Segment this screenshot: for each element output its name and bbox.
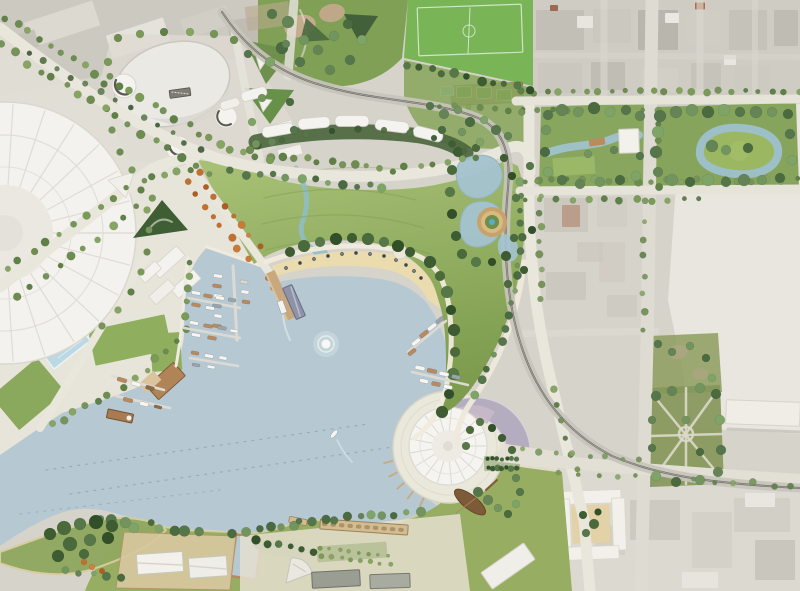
creek-park-east-trees [686, 104, 698, 116]
pacific-trees-south [109, 222, 118, 231]
andy-park-trees [267, 9, 277, 19]
quebec-street-trees [535, 250, 543, 258]
quay-trees [181, 312, 189, 320]
cross-street-trees [665, 198, 671, 204]
white-roof [682, 572, 718, 588]
arena-plaza-trees [136, 30, 144, 38]
terminal-trees [588, 454, 593, 459]
main-street-trees [655, 183, 663, 191]
park-lawn [552, 156, 595, 177]
arena-plaza-trees [114, 34, 122, 42]
expo-trees-north [82, 62, 89, 69]
expo-trees-south [39, 70, 45, 76]
bosque-row [500, 458, 504, 462]
andy-park-trees [357, 35, 367, 45]
expo-trees-north [187, 121, 193, 127]
expo-trees-north-east [339, 161, 346, 168]
creek-park-west-trees [556, 104, 568, 116]
quay-trees [186, 273, 193, 280]
junction-trees [148, 173, 155, 180]
cross-street-trees [545, 89, 551, 95]
expo-trees-south [112, 112, 119, 119]
lawn-north-trees [354, 184, 360, 190]
expo-trees-south [23, 61, 31, 69]
expo-median-trees [171, 130, 176, 135]
arena-plaza-trees [230, 36, 238, 44]
creek-park-east-trees [666, 174, 678, 186]
stadium-ring-trees [138, 187, 145, 194]
andy-park-trees [313, 45, 323, 55]
orchard-row [329, 554, 334, 559]
cross-street-trees [715, 87, 722, 94]
island-trees [89, 515, 103, 529]
roofband-trees [431, 135, 437, 141]
pond-park-trees [447, 209, 457, 219]
thornton-trees [648, 416, 656, 424]
quay-trees [151, 354, 159, 362]
orchard-row [340, 556, 344, 560]
cross-street-trees [586, 196, 593, 203]
terminal-trees [633, 473, 637, 477]
beach-umbrellas [326, 254, 329, 257]
berm-trees [310, 549, 317, 556]
courts-edge-trees [437, 105, 441, 109]
field-edge-trees [463, 73, 469, 79]
quay-trees [163, 349, 169, 355]
slope-trees [438, 126, 446, 134]
expo-trees-north-east [226, 146, 234, 154]
lawn-north-trees [298, 174, 307, 183]
expo-trees-north [153, 102, 159, 108]
east-shore-grove [446, 305, 456, 315]
city-block [729, 10, 767, 50]
thornton-trees [713, 467, 723, 477]
orchard-row [367, 552, 371, 556]
lawn-north-trees [377, 184, 386, 193]
andy-park-trees [282, 16, 294, 28]
curve-trees-east [518, 233, 526, 241]
quay-trees [174, 339, 179, 344]
dirt-patch [692, 368, 708, 380]
umbrella-tops [341, 253, 342, 254]
creek-park-east-trees [670, 106, 682, 118]
festival-autumn-trees [185, 178, 191, 184]
pond-park-trees [526, 162, 534, 170]
dome-shore-trees [504, 510, 512, 518]
park-pavilion [619, 129, 640, 154]
south-shore-trees [155, 524, 163, 532]
expo-median-trees [141, 114, 147, 120]
berm-trees [288, 544, 294, 550]
terminal-trees [636, 457, 642, 463]
curve-trees-east [483, 366, 490, 373]
street-ne [516, 55, 800, 57]
green-block-trees [654, 340, 662, 348]
curve-trees-east [491, 352, 497, 358]
arena-plaza-trees [266, 156, 274, 164]
creek-park-east-trees [721, 177, 731, 187]
terminal-trees [615, 474, 620, 479]
pond-park-trees [447, 165, 457, 175]
expo-trees-north [36, 36, 42, 42]
south-shore-trees [307, 517, 316, 526]
master-plan-map [0, 0, 800, 591]
festival-autumn-trees [231, 214, 236, 219]
stadium-ring-trees [117, 149, 124, 156]
expo-trees-north-east [252, 154, 259, 161]
curve-trees [445, 159, 451, 165]
thornton-trees [667, 386, 677, 396]
pond-park-trees [501, 251, 511, 261]
quebec-street-trees [550, 386, 557, 393]
east-shore-grove [488, 424, 496, 432]
expo-trees-south [154, 137, 160, 143]
pacific-trees-north [98, 204, 104, 210]
stadium-ring-trees [129, 167, 136, 174]
south-shore-trees [296, 518, 302, 524]
curve-trees-east [505, 312, 513, 320]
expo-median-trees [55, 66, 60, 71]
umbrella-tops [413, 270, 414, 271]
umbrella-tops [395, 259, 396, 260]
andy-park-trees [295, 57, 305, 67]
island-autumn-trees [81, 559, 87, 565]
pond-park-trees [451, 231, 461, 241]
creek-park-east-trees [721, 145, 731, 155]
arena-plaza-trees [101, 81, 108, 88]
andy-park-trees [345, 55, 355, 65]
expo-median-trees [40, 57, 47, 64]
courts-edge-trees [477, 104, 484, 111]
roofband-trees [329, 128, 335, 134]
expo-trees-south [74, 91, 82, 99]
cross-street-trees [523, 198, 527, 202]
island-trees [79, 549, 89, 559]
thornton-trees [651, 471, 661, 481]
cross-street-trees [637, 87, 644, 94]
expo-trees-north [135, 93, 144, 102]
curve-trees-east [517, 208, 522, 213]
east-shore-grove [450, 347, 460, 357]
curve-trees-east [498, 337, 507, 346]
expo-median-trees [181, 140, 187, 146]
south-shore-trees [170, 526, 180, 536]
field-edge-trees [490, 80, 496, 86]
thornton-trees [695, 475, 705, 485]
expo-trees-south [136, 130, 145, 139]
quay-trees [187, 260, 192, 265]
quay-trees [95, 398, 102, 405]
curve-trees [400, 163, 407, 170]
cross-street-trees [606, 178, 612, 184]
stadium-ring-trees [99, 323, 106, 330]
bosque-row [499, 466, 504, 471]
south-shore-trees [322, 515, 331, 524]
slope-trees [504, 132, 512, 140]
expo-median-trees [98, 88, 105, 95]
creek-park-east-trees [775, 173, 785, 183]
cross-street-trees [548, 176, 554, 182]
creek-park-east-trees [685, 177, 695, 187]
south-shore-trees [266, 522, 276, 532]
field-edge-trees [438, 70, 445, 77]
andy-park-trees [329, 31, 339, 41]
creek-park-east-trees [757, 175, 767, 185]
pond-park-trees [471, 257, 481, 267]
green-block-trees [668, 348, 676, 356]
expo-median-trees [113, 98, 118, 103]
beach-grove [392, 240, 404, 252]
main-street-trees [655, 137, 661, 143]
stadium-ring-trees [128, 289, 135, 296]
beach-grove [379, 237, 389, 247]
expo-median-trees [155, 123, 160, 128]
pond-park-trees [500, 154, 508, 162]
expo-trees-north-east [240, 149, 246, 155]
pond-park-trees [510, 234, 518, 242]
creek-park-west-trees [573, 107, 583, 117]
expo-trees-north [216, 140, 225, 149]
green-block-trees [708, 374, 716, 382]
expo-trees-north [160, 107, 167, 114]
fountain [322, 340, 331, 349]
city-block [546, 272, 586, 300]
cross-street-trees [553, 196, 560, 203]
curve-trees [473, 155, 479, 161]
red-roof-block [562, 205, 580, 227]
cross-street-trees [537, 197, 542, 202]
slope-trees [426, 102, 434, 110]
creek-park-west-trees [615, 175, 625, 185]
creek-park-west-trees [557, 175, 567, 185]
festival-autumn-trees [211, 214, 216, 219]
pacific-trees-south [13, 293, 21, 301]
island-south-trees [117, 574, 125, 582]
creek-park-west-trees [635, 111, 645, 121]
expo-trees-north-east [290, 155, 297, 162]
pacific-trees-north [124, 185, 129, 190]
bosque-row [509, 456, 514, 461]
expo-trees-north-east [329, 158, 336, 165]
main-street-trees [642, 219, 647, 224]
courtyard-palms [579, 511, 587, 519]
field-edge-trees [477, 77, 487, 87]
creek-park-west-trees [584, 150, 592, 158]
bosque-row [494, 456, 499, 461]
south-shore-trees [378, 512, 386, 520]
expo-trees-north [90, 70, 99, 79]
island-trees [84, 534, 96, 546]
orchard-row [389, 562, 394, 567]
city-block [536, 10, 584, 50]
east-shore-grove [462, 442, 470, 450]
orchard-row [357, 551, 360, 554]
cross-street-trees [648, 198, 655, 205]
east-shore-grove [508, 446, 516, 454]
expo-trees-north [71, 55, 77, 61]
cross-street-trees [676, 87, 683, 94]
expo-trees-south [47, 73, 55, 81]
pond-park-trees [512, 194, 520, 202]
city-block [755, 540, 795, 580]
creek-park-east-trees [654, 110, 666, 122]
east-shore-grove [424, 256, 436, 268]
orchard-row [378, 562, 382, 566]
festival-autumn-trees [222, 203, 228, 209]
field-edge-trees [526, 86, 534, 94]
pond-park-trees [508, 172, 516, 180]
pacific-trees-south [80, 246, 86, 252]
lawn-north-trees [325, 180, 331, 186]
creek-park-east-trees [702, 106, 714, 118]
cross-street-trees [648, 180, 653, 185]
courts-edge-trees [492, 106, 498, 112]
field-edge-trees [449, 68, 459, 78]
dome-shore-trees [473, 487, 483, 497]
pocket-park-trees [268, 138, 276, 146]
island-south-trees [75, 570, 81, 576]
pocket-park-trees [252, 140, 260, 148]
junction-trees [173, 168, 181, 176]
main-street-trees [640, 237, 647, 244]
festival-autumn-trees [217, 223, 222, 228]
pacific-trees-north [31, 248, 38, 255]
pocket-park-trees [258, 94, 266, 102]
pocket-park-trees [282, 40, 290, 48]
orchard-row [347, 549, 351, 553]
mound-pool [489, 219, 495, 225]
expo-median-trees [128, 105, 133, 110]
green-block-trees [686, 342, 694, 350]
beach-grove [315, 237, 325, 247]
south-shore-trees [256, 525, 263, 532]
festival-autumn-trees [258, 244, 264, 250]
arena-plaza-trees [109, 127, 116, 134]
thornton-trees [695, 383, 705, 393]
quay-trees [82, 402, 89, 409]
island-trees [63, 537, 77, 551]
stadium-ring-trees [144, 207, 151, 214]
island-trees [52, 550, 64, 562]
pond-park-trees [504, 280, 512, 288]
terminal-trees [713, 481, 718, 486]
arena-plaza-trees [103, 105, 110, 112]
festival-autumn-trees [193, 191, 198, 196]
lawn-north-trees [367, 182, 373, 188]
cross-street-trees [534, 179, 539, 184]
dome-hub [443, 441, 453, 451]
city-block [692, 512, 732, 568]
city-block [774, 10, 798, 46]
quebec-street-trees [538, 223, 545, 230]
south-shore-trees [358, 513, 364, 519]
terminal-trees [787, 483, 793, 489]
stadium-ring-trees [138, 269, 145, 276]
south-shore-trees [148, 519, 155, 526]
train-station [726, 400, 800, 427]
red-roof [550, 5, 558, 11]
umbrella-tops [285, 267, 286, 268]
cross-street-trees [770, 89, 776, 95]
city-block [691, 63, 721, 89]
cross-street-trees [688, 88, 695, 95]
south-shore-trees [416, 507, 426, 517]
white-roof [745, 493, 775, 507]
cross-street-trees [703, 89, 710, 96]
orchard-row [327, 547, 330, 550]
terminal-trees [602, 453, 608, 459]
terminal-trees [554, 451, 559, 456]
beach-grove [298, 240, 310, 252]
field-edge-trees [403, 62, 410, 69]
bosque-row [514, 457, 519, 462]
curve-trees-east [471, 391, 480, 400]
creek-park-west-trees [610, 146, 618, 154]
terminal-trees [749, 478, 756, 485]
village-building [312, 570, 361, 588]
curve-trees [418, 163, 424, 169]
quebec-street-trees [558, 418, 564, 424]
creek-park-east-trees [735, 107, 745, 117]
orchard-row [358, 558, 363, 563]
east-shore-grove [435, 271, 445, 281]
thornton-trees [671, 477, 681, 487]
quay-trees [145, 368, 150, 373]
south-shore-trees [195, 527, 204, 536]
curve-trees [390, 169, 396, 175]
georgia-ramp [288, 2, 294, 76]
curved-building [335, 116, 369, 127]
pacific-trees-north [57, 232, 62, 237]
pocket-park-trees [286, 98, 294, 106]
south-shore-trees [403, 509, 409, 515]
pacific-trees-north [5, 266, 11, 272]
east-shore-grove [436, 406, 448, 418]
quebec-street-trees [539, 267, 544, 272]
curve-trees-east [513, 271, 521, 279]
city-block [599, 242, 625, 282]
expo-trees-north [1, 16, 7, 22]
expo-trees-north [48, 43, 53, 48]
orchard-row [368, 559, 373, 564]
main-street-trees [640, 252, 647, 259]
creek-park-east-trees [767, 107, 777, 117]
arena-plaza-trees [104, 58, 112, 66]
dome-shore-trees [483, 495, 493, 505]
junction-trees [161, 172, 168, 179]
expo-trees-south [177, 153, 186, 162]
quay-trees [69, 408, 76, 415]
courts-edge-trees [505, 108, 511, 114]
pond-park-trees [528, 226, 536, 234]
quay-trees [49, 420, 56, 427]
beach-grove [362, 233, 374, 245]
lawn-north-trees [270, 171, 276, 177]
festival-autumn-trees [203, 184, 209, 190]
beach-umbrellas [298, 261, 301, 264]
quebec-street-trees [575, 467, 581, 473]
roofband-trees [381, 127, 387, 133]
cross-street-trees [615, 197, 622, 204]
south-shore-trees [277, 523, 284, 530]
field-edge-trees [514, 82, 522, 90]
city-block [607, 295, 637, 317]
umbrella-tops [313, 258, 314, 259]
quebec-street-trees [554, 402, 560, 408]
cross-street-trees [682, 196, 687, 201]
quebec-street-trees [537, 239, 542, 244]
courtyard-palms [582, 529, 590, 537]
